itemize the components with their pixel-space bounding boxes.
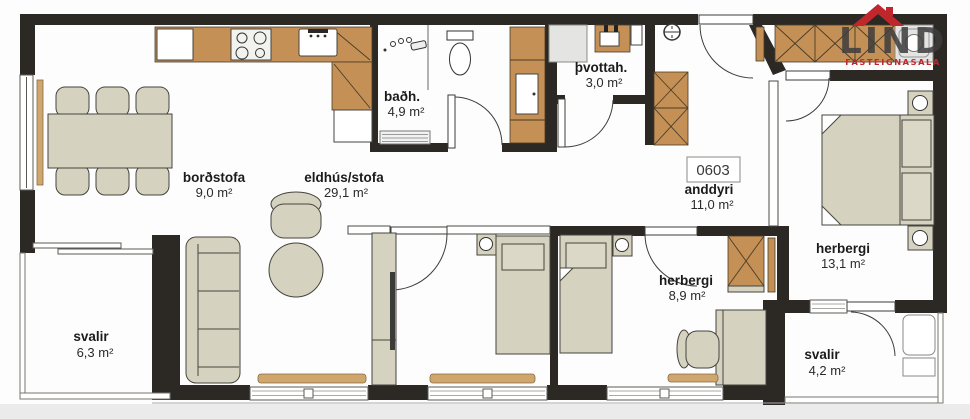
armchair-icon	[271, 192, 321, 238]
shower-icon	[384, 38, 427, 52]
chair-icon	[56, 165, 89, 195]
laundry-shelf	[631, 25, 642, 45]
wall-left-upper	[20, 14, 35, 75]
label-bedroom-small: herbergi	[659, 273, 713, 288]
laundry-door	[558, 99, 613, 147]
sofa-icon	[186, 237, 240, 383]
living-room	[186, 192, 535, 383]
wall-top-left	[20, 14, 698, 25]
wall-bottom-d	[723, 385, 785, 400]
bedroom-middle	[372, 233, 550, 385]
wall-balcony2-a	[785, 300, 810, 313]
kitchen-sink-icon	[299, 29, 337, 56]
wall-bath-bottom-r	[502, 143, 545, 152]
small-wardrobe-icon	[728, 236, 775, 292]
dining-table-icon	[48, 114, 172, 168]
area-bedroom-small: 8,9 m²	[669, 288, 707, 303]
single-bed-left-icon	[496, 236, 550, 354]
balcony2-door	[847, 302, 895, 356]
wall-bedroom-divider	[777, 226, 789, 312]
double-bed-icon	[822, 115, 934, 225]
bathroom-door	[448, 95, 502, 148]
balcony2-furniture	[903, 315, 935, 376]
chair-icon	[56, 87, 89, 117]
laundry	[549, 25, 642, 62]
radiator-midroom	[430, 374, 535, 383]
bedroom-large	[822, 91, 934, 250]
railing-bottom-right	[785, 397, 943, 403]
bathroom	[380, 25, 545, 144]
nightstand-bottom	[908, 226, 933, 250]
hall-wardrobe-icon	[654, 72, 688, 145]
label-bath: baðh.	[384, 89, 420, 104]
logo-name: LIND	[839, 21, 947, 62]
midroom-door	[391, 227, 447, 290]
label-laundry: þvottah.	[575, 60, 628, 75]
nightstand-left	[477, 234, 496, 255]
nightstand-right	[613, 235, 632, 256]
fridge-icon	[157, 29, 193, 60]
washer-icon	[549, 25, 587, 62]
window-midroom	[428, 387, 547, 400]
wall-balcony2-b	[895, 300, 933, 313]
label-bedroom-large: herbergi	[816, 241, 870, 256]
area-dining: 9,0 m²	[196, 185, 234, 200]
area-laundry: 3,0 m²	[586, 75, 624, 90]
nightstand-top	[908, 91, 933, 115]
tv-shelf-unit	[372, 233, 396, 385]
wall-bottom-c	[547, 385, 607, 400]
logo-tagline: FASTEIGNASALA	[845, 57, 941, 67]
window-bedroom-small	[607, 387, 723, 400]
round-table-icon	[269, 243, 323, 297]
agency-logo: LIND FASTEIGNASALA	[839, 4, 947, 67]
page-margin	[0, 404, 970, 419]
partition-midroom-b	[447, 226, 550, 234]
desk-chair-icon	[677, 330, 719, 368]
floor-plan-page: borðstofa 9,0 m² eldhús/stofa 29,1 m² ba…	[0, 0, 970, 419]
railing-right	[938, 313, 943, 403]
area-kitchen: 29,1 m²	[324, 185, 369, 200]
vent-icon	[664, 24, 680, 40]
bedroom-large-door	[786, 71, 830, 121]
entrance-door	[699, 15, 753, 78]
stove-icon	[231, 29, 271, 60]
chair-icon	[136, 165, 169, 195]
area-balcony1: 6,3 m²	[77, 345, 115, 360]
railing-bottom-left	[20, 393, 170, 399]
laundry-sink-icon	[595, 25, 630, 52]
balcony-table-icon	[903, 358, 935, 376]
radiator-bedroom-small	[668, 374, 718, 382]
area-bedroom-large: 13,1 m²	[821, 256, 866, 271]
shower-mat	[380, 131, 430, 144]
chair-icon	[136, 87, 169, 117]
radiator-living	[258, 374, 366, 383]
wall-balcony1-right	[152, 235, 180, 385]
wall-room-top-r	[697, 226, 789, 236]
wall-laundry-right	[645, 14, 655, 145]
chair-icon	[96, 87, 129, 117]
label-balcony1: svalir	[73, 329, 109, 344]
floor-plan: borðstofa 9,0 m² eldhús/stofa 29,1 m² ba…	[0, 0, 970, 419]
wall-bedroom-top	[830, 70, 933, 81]
wardrobe-side-panel	[756, 27, 764, 61]
window-living	[250, 387, 368, 400]
sliding-door-balcony	[33, 243, 153, 254]
toilet-icon	[447, 31, 473, 75]
radiator-dining	[37, 80, 43, 185]
desk	[716, 310, 766, 385]
label-balcony2: svalir	[804, 347, 840, 362]
single-bed-right-icon	[560, 235, 612, 353]
apartment-number-badge: 0603	[687, 157, 740, 182]
chair-icon	[96, 165, 129, 195]
dishwasher-icon	[334, 110, 372, 142]
label-dining: borðstofa	[183, 170, 246, 185]
wall-midrooms	[550, 234, 558, 385]
label-kitchen: eldhús/stofa	[304, 170, 384, 185]
railing-left	[20, 253, 25, 395]
window-left	[20, 75, 33, 190]
wall-bottom-b	[368, 385, 428, 400]
apartment-number: 0603	[696, 162, 729, 179]
wall-laundry-bottom-r	[613, 95, 645, 104]
dining-area	[37, 80, 172, 195]
area-balcony2: 4,2 m²	[809, 363, 847, 378]
area-bath: 4,9 m²	[388, 104, 426, 119]
label-hall: anddyri	[685, 182, 734, 197]
window-bedroom-balcony	[810, 300, 847, 313]
bathroom-cabinet	[510, 27, 545, 143]
kitchen	[155, 27, 372, 142]
area-hall: 11,0 m²	[690, 197, 734, 212]
bedroom-small	[560, 235, 775, 385]
balcony-chair-icon	[903, 315, 935, 355]
partition-hall-bedroom	[769, 81, 778, 226]
